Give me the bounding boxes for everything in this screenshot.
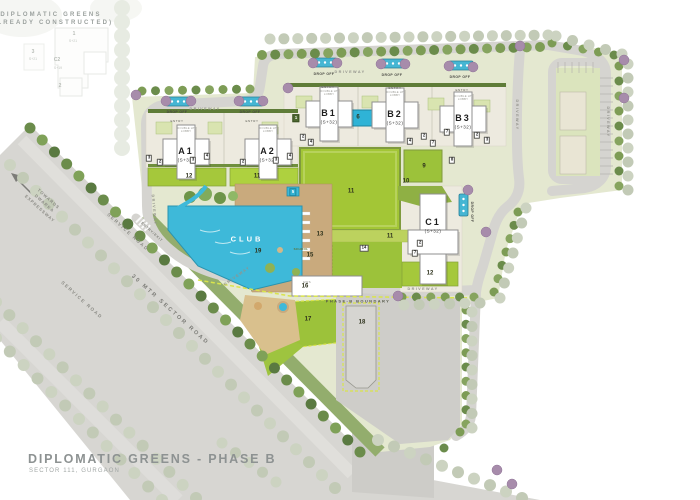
site-plan-canvas bbox=[0, 0, 700, 500]
site-plan: DIPLOMATIC GREENS (ALREADY CONSTRUCTED) … bbox=[0, 0, 700, 500]
